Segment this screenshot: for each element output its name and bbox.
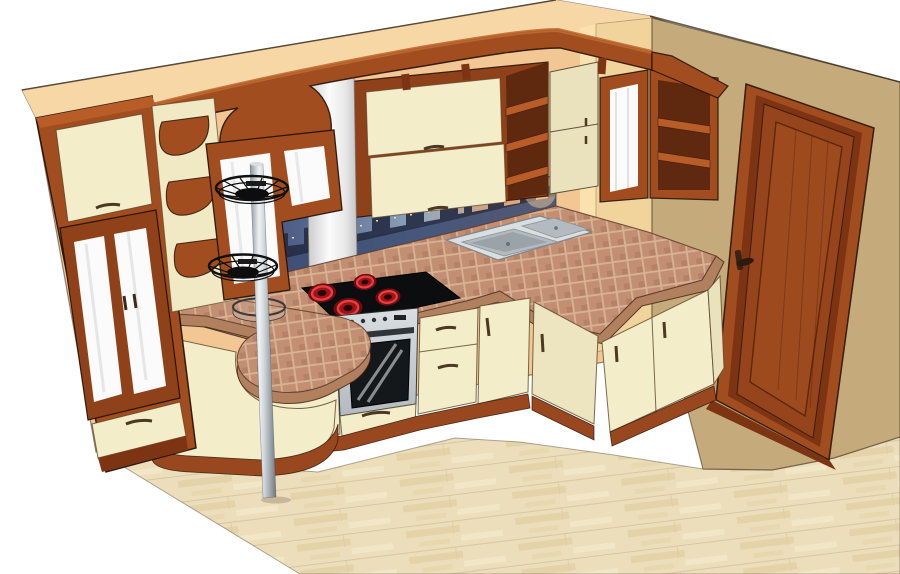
corner-upper-cabinet	[550, 62, 598, 194]
base-drawers-right	[418, 308, 478, 414]
base-door-cabinet	[478, 298, 530, 404]
screen-panel-right	[284, 146, 330, 206]
pole-collar-lower	[238, 259, 257, 264]
pole-top-cap	[250, 162, 263, 166]
corner-base-handle	[542, 334, 543, 352]
pole-collar-upper	[246, 181, 266, 186]
sink-drain-left	[506, 242, 510, 246]
kitchen-3d-render	[0, 0, 900, 574]
frosted-corner-door	[600, 70, 648, 202]
sink-drain-right	[554, 226, 558, 230]
kitchen-render-stage	[0, 0, 900, 574]
base-door-handle	[487, 318, 489, 336]
upper-flip-door-top	[366, 78, 502, 156]
upper-open-shelves	[506, 62, 548, 200]
